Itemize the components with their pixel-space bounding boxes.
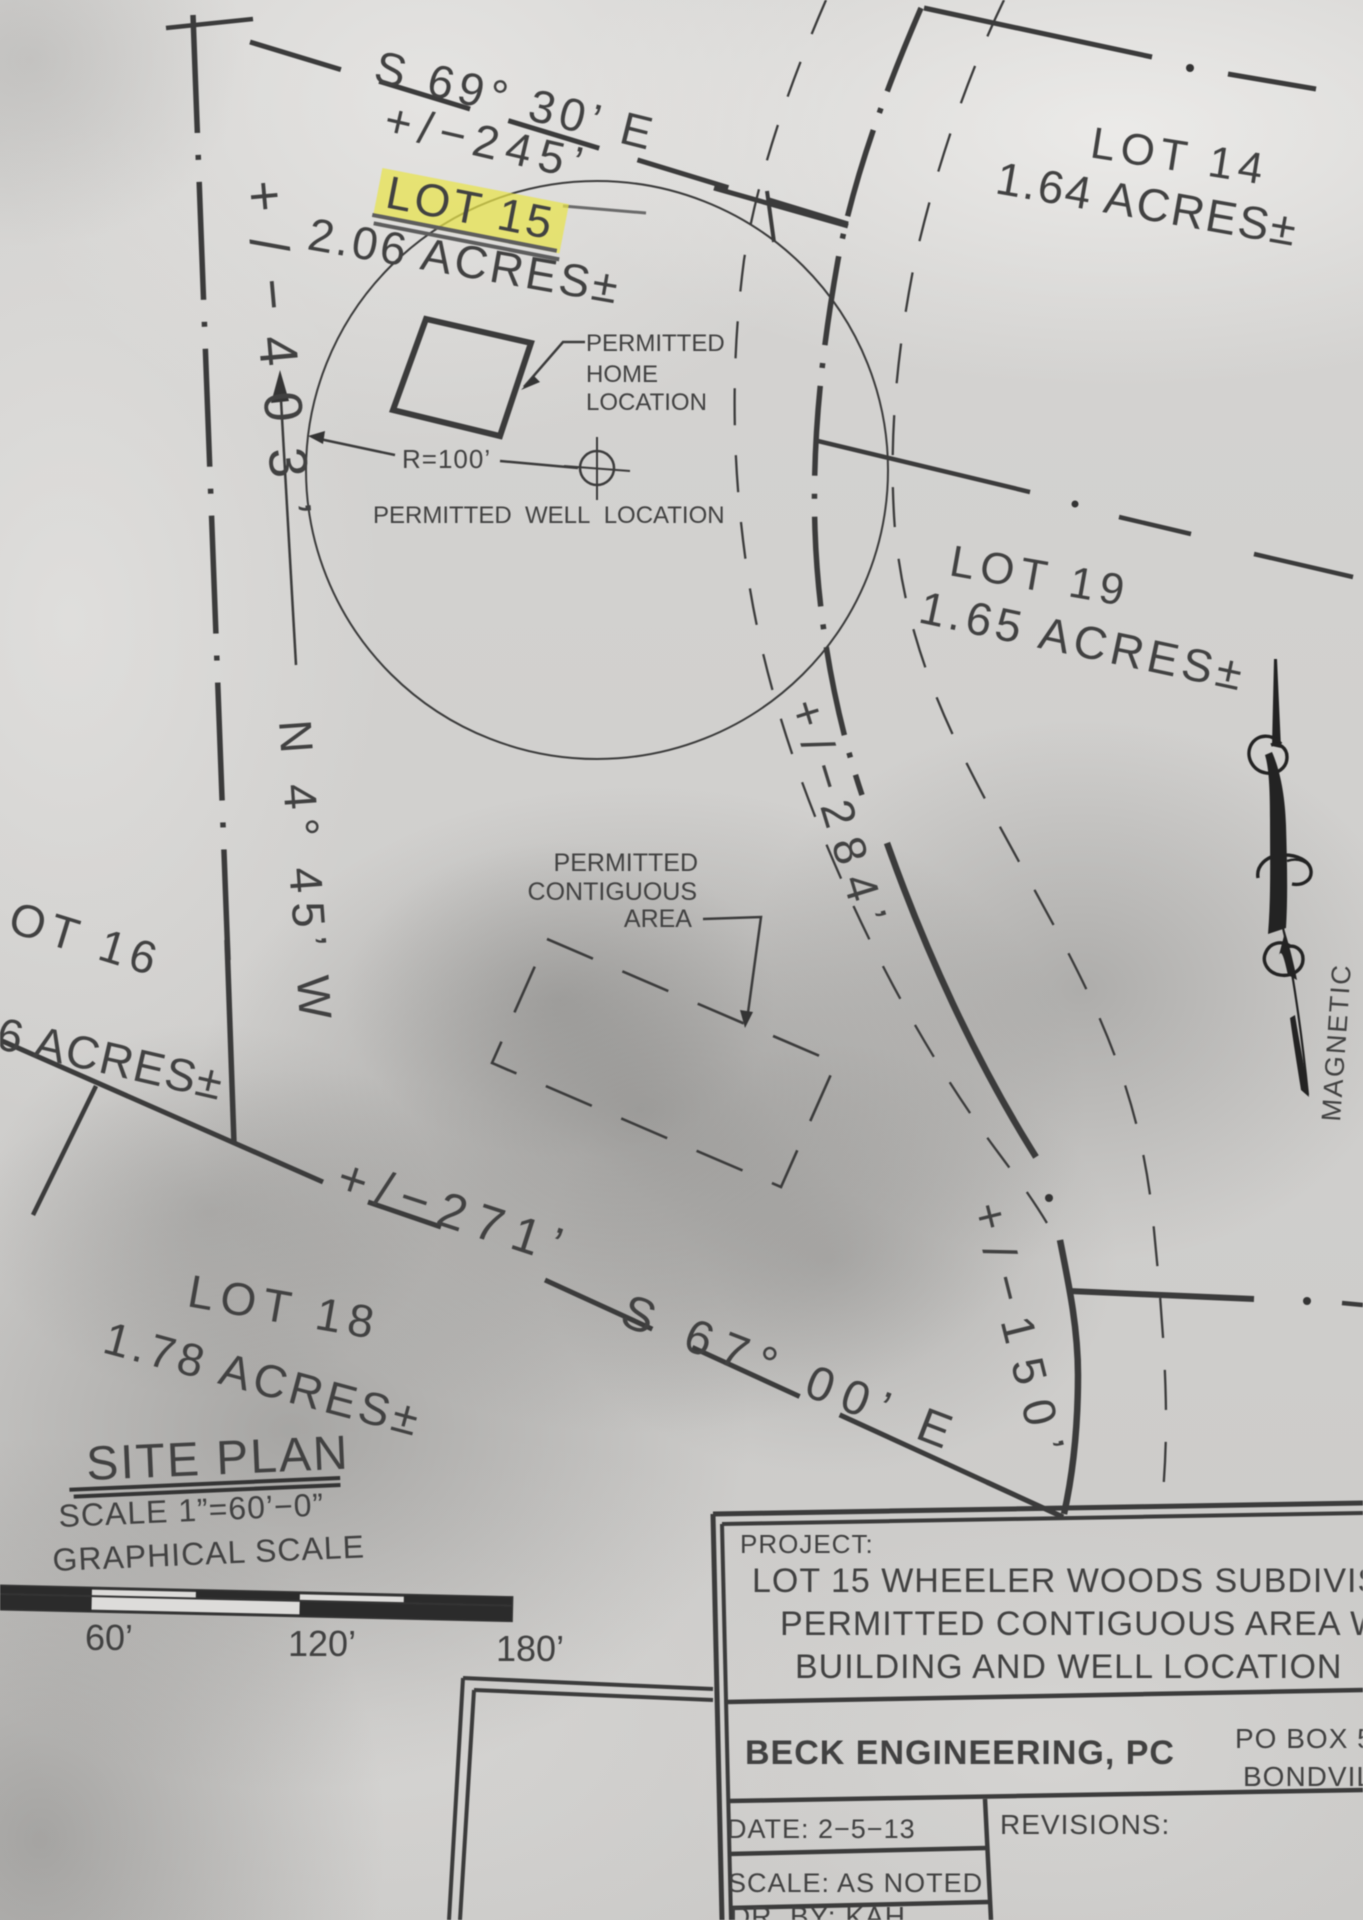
svg-text:60’: 60’ [85,1617,133,1658]
svg-text:BONDVILLE: BONDVILLE [1243,1761,1363,1792]
svg-text:PROJECT:: PROJECT: [740,1529,874,1559]
svg-text:LOT 15 WHEELER WOODS SUBDIVISI: LOT 15 WHEELER WOODS SUBDIVISIO [752,1562,1363,1600]
svg-text:180’: 180’ [496,1628,564,1669]
svg-text:AREA: AREA [624,905,692,933]
svg-text:REVISIONS:: REVISIONS: [1000,1809,1170,1840]
svg-text:S 67° 00’ E: S 67° 00’ E [614,1285,969,1463]
svg-text:+/−271’: +/−271’ [331,1148,580,1277]
svg-text:R=100’: R=100’ [402,444,491,474]
svg-text:DR. BY: KAH: DR. BY: KAH [730,1901,906,1920]
svg-text:GRAPHICAL SCALE: GRAPHICAL SCALE [52,1528,366,1578]
svg-text:LOT 18: LOT 18 [184,1265,385,1350]
svg-text:N 4° 45’ W: N 4° 45’ W [269,718,342,1030]
svg-text:BUILDING AND WELL LOCATION: BUILDING AND WELL LOCATION [795,1648,1342,1686]
svg-text:DATE: 2−5−13: DATE: 2−5−13 [727,1814,916,1844]
svg-text:120’: 120’ [288,1623,356,1664]
svg-text:6 ACRES±: 6 ACRES± [0,1007,229,1110]
svg-text:PERMITTED: PERMITTED [554,849,698,877]
svg-text:BECK ENGINEERING, PC: BECK ENGINEERING, PC [745,1734,1175,1772]
svg-text:SCALE: AS NOTED: SCALE: AS NOTED [728,1868,983,1898]
svg-text:LOT 16: LOT 16 [0,882,169,987]
svg-text:PERMITTED: PERMITTED [586,330,725,357]
svg-text:MAGNETIC: MAGNETIC [1316,962,1357,1122]
svg-text:LOCATION: LOCATION [586,389,707,416]
svg-text:HOME: HOME [586,361,658,388]
svg-text:PERMITTED CONTIGUOUS AREA WIT: PERMITTED CONTIGUOUS AREA WIT [780,1605,1363,1643]
svg-text:+/−150’: +/−150’ [962,1197,1078,1474]
svg-text:PERMITTED WELL LOCATION: PERMITTED WELL LOCATION [373,502,725,529]
svg-text:CONTIGUOUS: CONTIGUOUS [528,878,697,906]
svg-text:+/−284’: +/−284’ [779,693,900,942]
svg-text:PO BOX 51: PO BOX 51 [1235,1723,1363,1754]
